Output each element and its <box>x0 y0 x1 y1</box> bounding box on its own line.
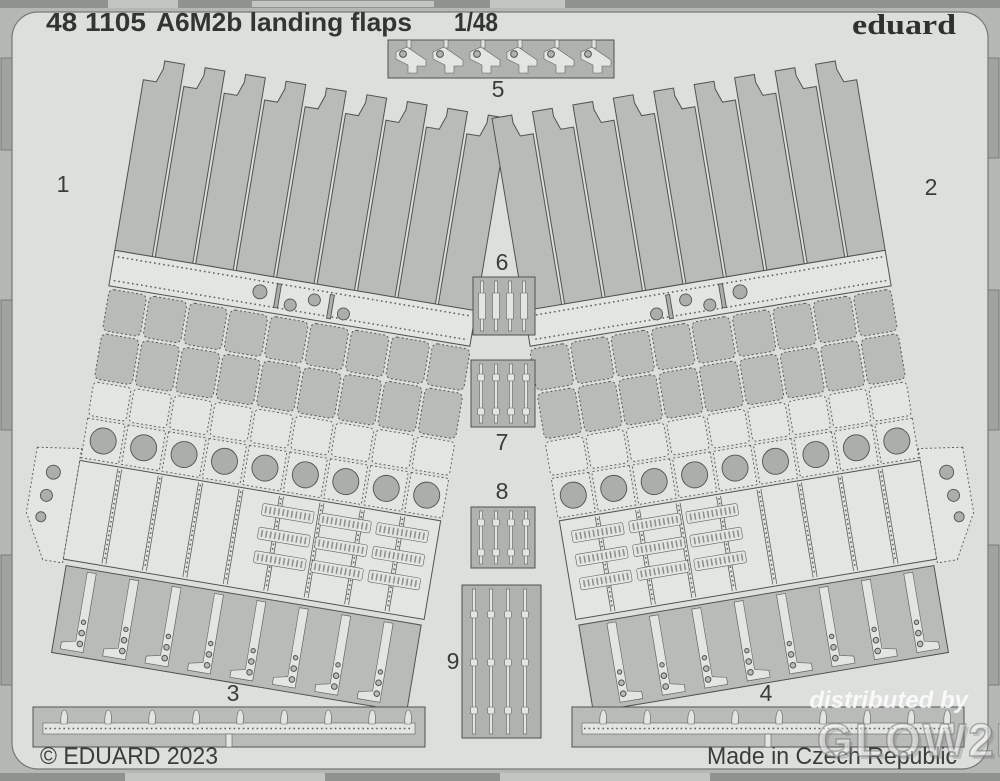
catalog-number: 48 1105 <box>46 7 146 37</box>
part-label-6: 6 <box>496 249 509 275</box>
photoetch-fret-sheet: 48 1105 A6M2b landing flaps 1/48 eduard <box>0 0 1000 781</box>
frame-rail <box>1 58 12 150</box>
frame-rail <box>988 290 999 430</box>
frame-rail <box>988 545 999 685</box>
sprue-tab <box>500 773 710 781</box>
watermark-line2: GLOW2B <box>817 714 1000 766</box>
watermark-line1: distributed by <box>809 687 969 714</box>
frame-rail <box>988 58 999 158</box>
frame-rail <box>1 300 12 430</box>
part-label-5: 5 <box>492 76 505 102</box>
frame-rail <box>1 555 12 685</box>
part-8-rods <box>471 507 535 568</box>
part-label-4: 4 <box>760 680 773 706</box>
sprue-tab <box>125 773 325 781</box>
fret-graphic: 48 1105 A6M2b landing flaps 1/48 eduard <box>0 0 1000 781</box>
part-label-3: 3 <box>227 680 240 706</box>
part-label-8: 8 <box>496 478 509 504</box>
scale-label: 1/48 <box>454 7 498 37</box>
part-7-rods <box>471 360 535 427</box>
part-3-strip <box>33 707 425 747</box>
part-label-2: 2 <box>925 174 938 200</box>
part-9-long-rods <box>462 585 541 738</box>
copyright-text: © EDUARD 2023 <box>40 743 218 770</box>
part-5-brackets <box>388 40 614 78</box>
part-6-bars <box>473 277 535 335</box>
brand-logo: eduard <box>852 9 956 41</box>
part-label-9: 9 <box>447 648 460 674</box>
sprue-tab <box>490 0 565 8</box>
product-name: A6M2b landing flaps <box>156 7 412 37</box>
part-label-7: 7 <box>496 429 509 455</box>
part-label-1: 1 <box>57 171 70 197</box>
